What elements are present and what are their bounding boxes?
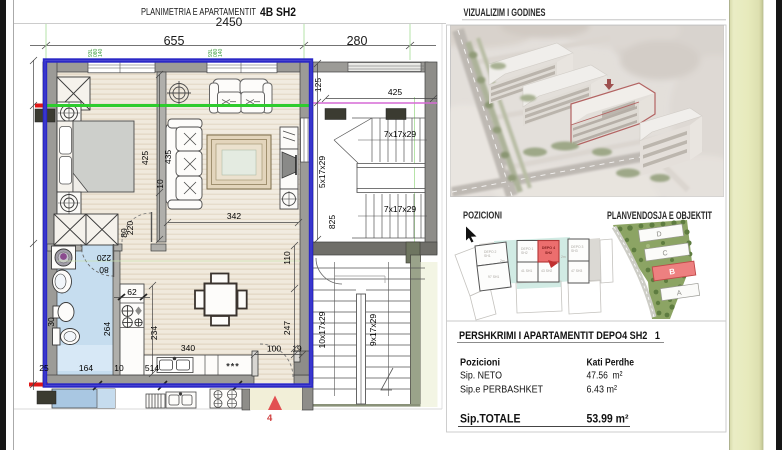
svg-text:DEPO 4: DEPO 4: [542, 246, 555, 250]
svg-text:VIZUALIZIM I GODINES: VIZUALIZIM I GODINES: [464, 7, 546, 19]
svg-text:10: 10: [114, 363, 124, 373]
svg-text:SH2: SH2: [521, 251, 528, 255]
svg-text:7x17x29: 7x17x29: [384, 129, 416, 139]
svg-text:435: 435: [163, 150, 173, 164]
svg-text:SH1: SH1: [484, 254, 491, 258]
svg-text:80: 80: [99, 265, 109, 275]
svg-text:10: 10: [155, 179, 165, 189]
svg-text:Sip. NETO: Sip. NETO: [460, 371, 502, 382]
svg-text:POZICIONI: POZICIONI: [463, 211, 502, 222]
svg-text:2m: 2m: [561, 255, 566, 259]
svg-text:125: 125: [313, 78, 323, 92]
svg-text:25: 25: [39, 363, 49, 373]
svg-text:140: 140: [98, 48, 104, 57]
svg-text:5x17x29: 5x17x29: [317, 156, 327, 188]
svg-text:140: 140: [218, 48, 224, 57]
svg-text:340: 340: [181, 343, 195, 353]
svg-text:4B SH2: 4B SH2: [260, 7, 296, 19]
svg-text:4: 4: [267, 413, 273, 424]
svg-text:53.99 m²: 53.99 m²: [587, 414, 629, 426]
svg-text:7x17x29: 7x17x29: [384, 204, 416, 214]
svg-text:80: 80: [119, 228, 129, 238]
svg-text:280: 280: [347, 34, 368, 48]
svg-text:SH2: SH2: [545, 251, 552, 255]
svg-text:97 SH1: 97 SH1: [488, 275, 499, 279]
svg-text:264: 264: [102, 322, 112, 336]
svg-text:C: C: [662, 250, 668, 258]
svg-text:220: 220: [97, 253, 111, 263]
svg-text:62: 62: [127, 287, 137, 297]
svg-text:2450: 2450: [216, 15, 243, 29]
svg-text:825: 825: [327, 215, 337, 229]
svg-text:43 SH2: 43 SH2: [541, 269, 552, 273]
svg-text:PERSHKRIMI I APARTAMENTIT DEPO: PERSHKRIMI I APARTAMENTIT DEPO4 SH2 1: [459, 330, 661, 342]
svg-text:164: 164: [79, 363, 93, 373]
svg-text:Kati Perdhe: Kati Perdhe: [587, 357, 635, 368]
svg-text:425: 425: [388, 87, 402, 97]
svg-text:100: 100: [267, 344, 281, 354]
svg-text:655: 655: [164, 34, 185, 48]
svg-text:514: 514: [145, 363, 159, 373]
svg-text:234: 234: [149, 326, 159, 340]
svg-text:30: 30: [46, 317, 56, 327]
svg-text:6.43 m²: 6.43 m²: [587, 384, 618, 395]
svg-text:425: 425: [140, 151, 150, 165]
svg-text:D: D: [656, 231, 662, 239]
svg-text:9x17x29: 9x17x29: [368, 314, 378, 346]
svg-text:Sip.e PERBASHKET: Sip.e PERBASHKET: [460, 384, 543, 395]
svg-text:2m: 2m: [500, 259, 505, 263]
svg-text:10x17x29: 10x17x29: [317, 311, 327, 348]
svg-text:***: ***: [226, 362, 240, 372]
svg-text:SH3: SH3: [571, 249, 578, 253]
svg-text:Pozicioni: Pozicioni: [460, 357, 500, 368]
svg-text:47 SH3: 47 SH3: [571, 269, 582, 273]
svg-text:47.56 m²: 47.56 m²: [587, 371, 624, 382]
svg-text:342: 342: [227, 211, 241, 221]
svg-text:247: 247: [282, 321, 292, 335]
svg-text:110: 110: [282, 251, 292, 265]
svg-text:PLANVENDOSJA E OBJEKTIT: PLANVENDOSJA E OBJEKTIT: [607, 210, 712, 222]
svg-text:41 SH1: 41 SH1: [521, 269, 532, 273]
svg-text:Sip.TOTALE: Sip.TOTALE: [460, 414, 521, 426]
